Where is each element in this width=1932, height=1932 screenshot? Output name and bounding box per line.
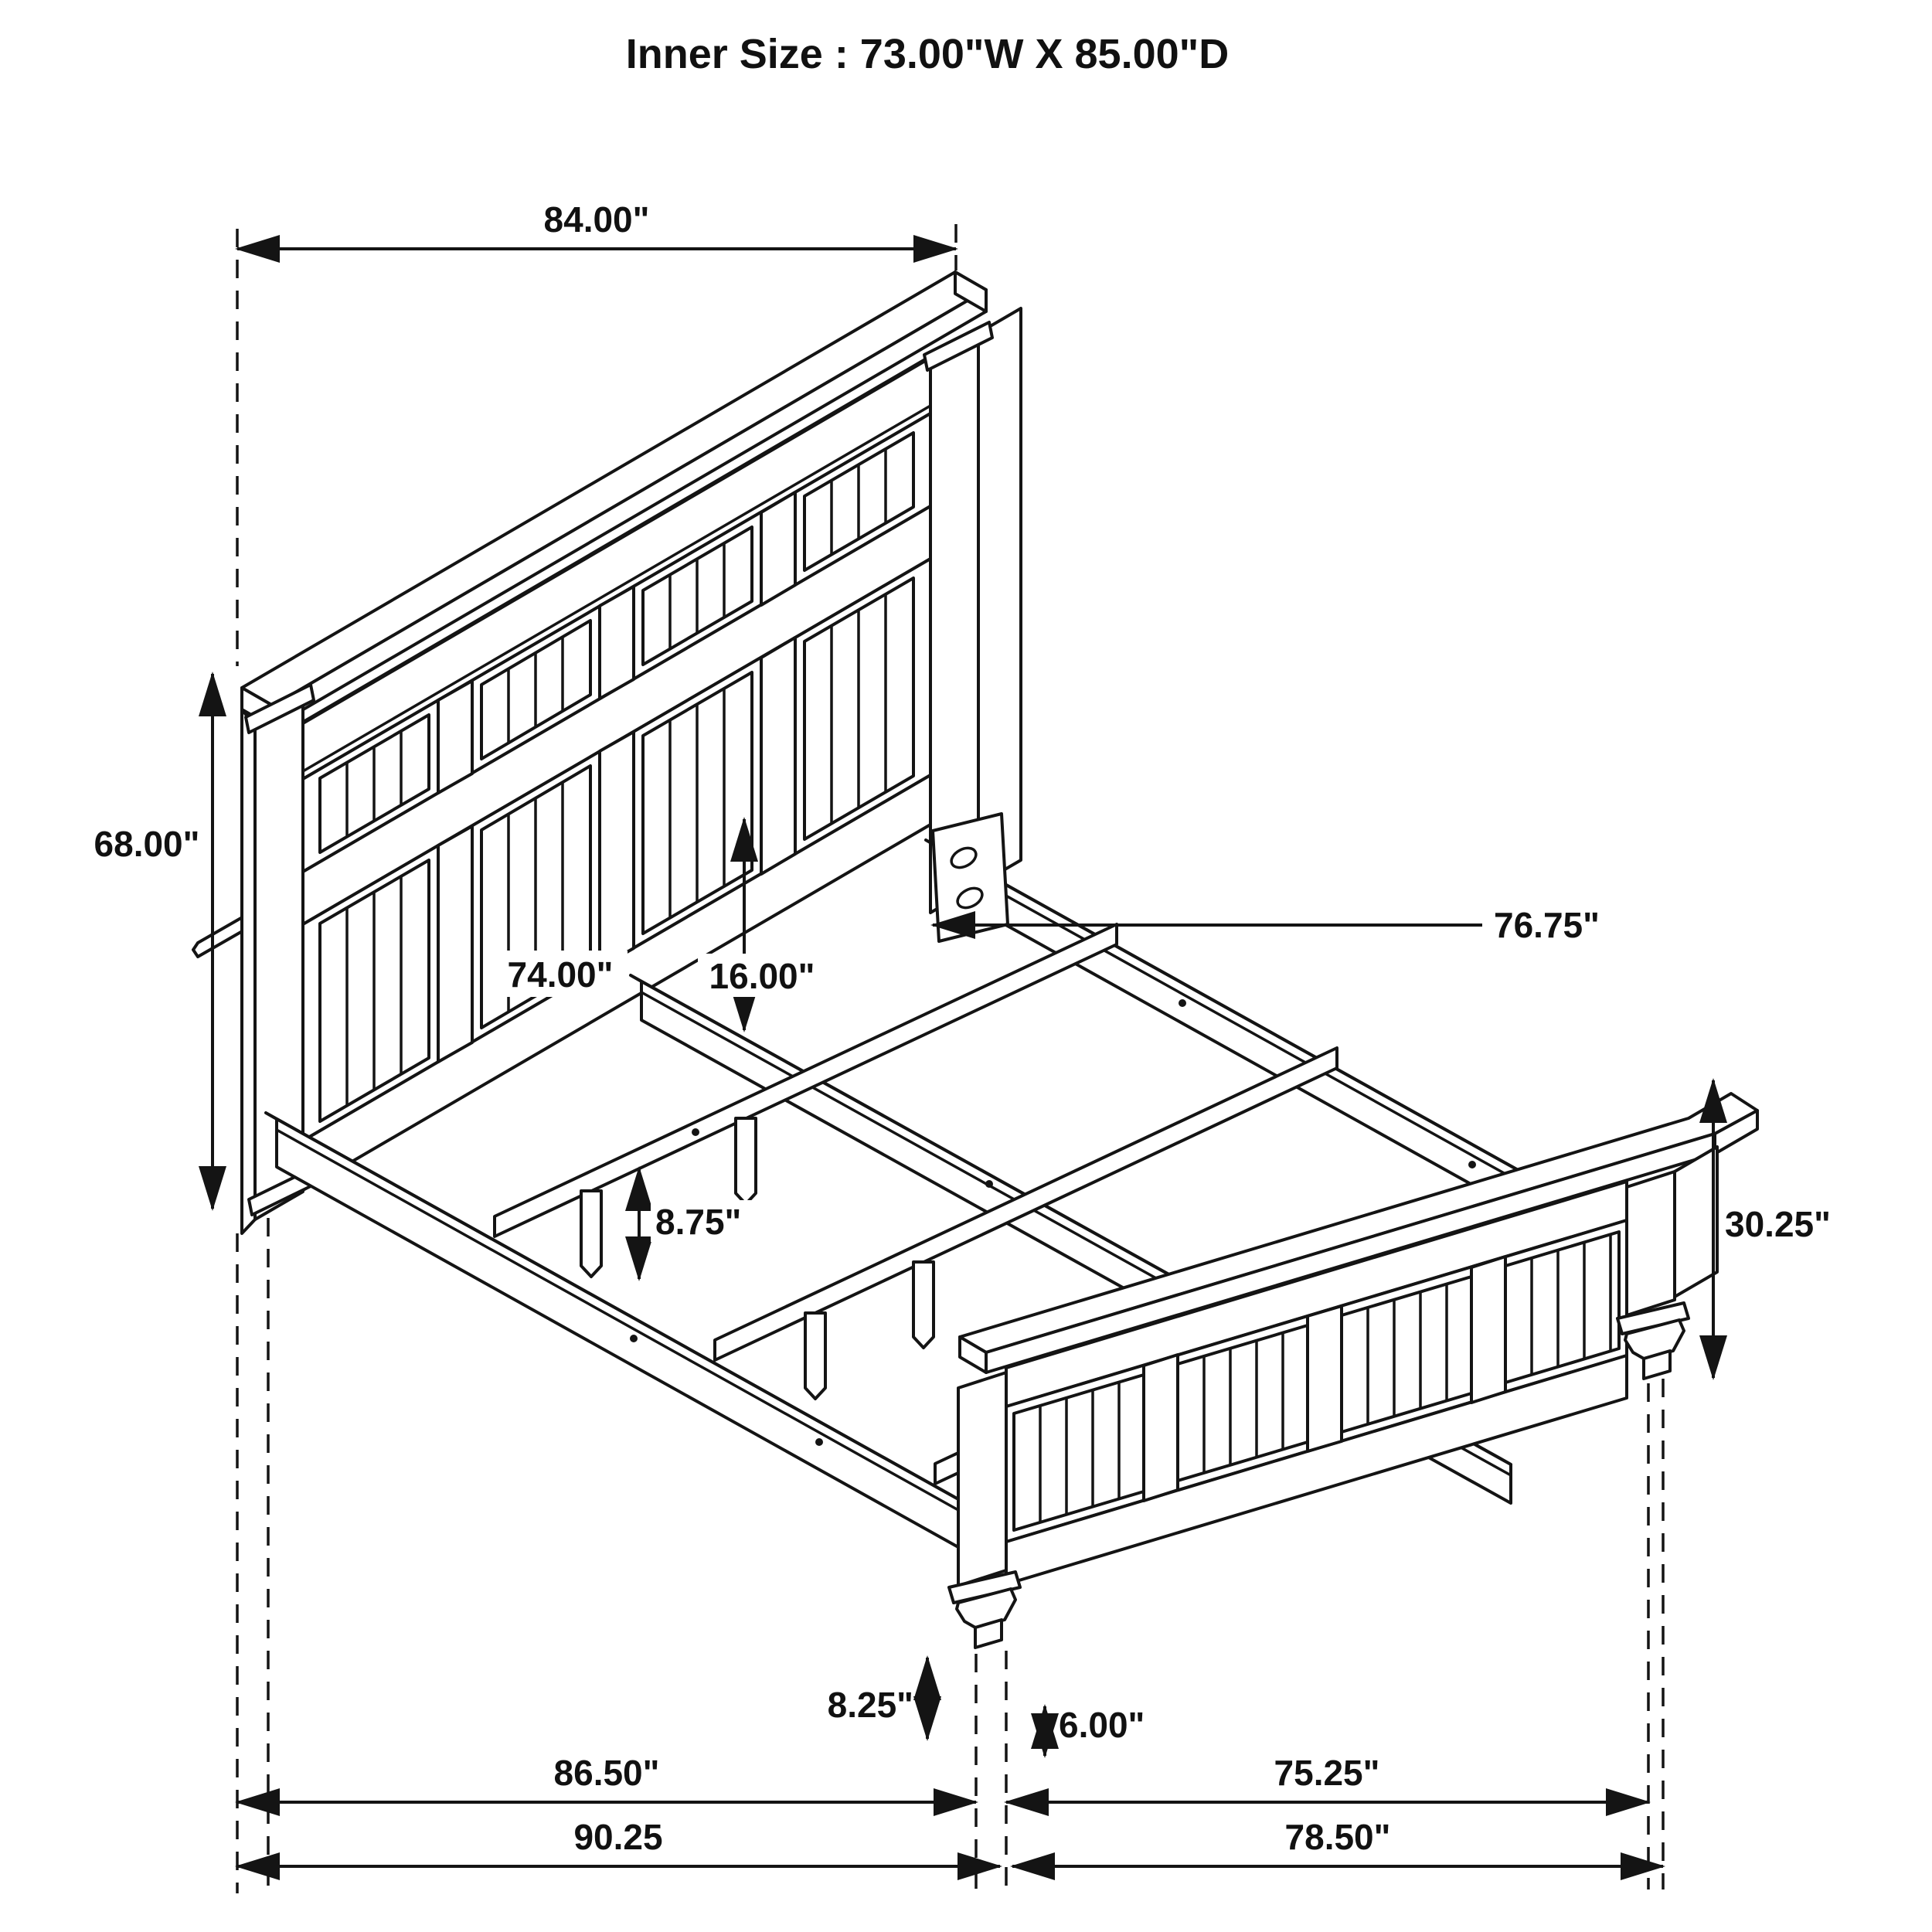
headboard-stile <box>438 826 472 1062</box>
dim-footboard-overall-width: 78.50" <box>1012 1817 1663 1866</box>
headboard-right-post-side <box>978 308 1021 885</box>
headboard-left-post-side <box>242 709 255 1233</box>
footboard-right-post <box>1627 1172 1675 1315</box>
slat-leg <box>805 1313 825 1399</box>
svg-text:30.25": 30.25" <box>1725 1204 1831 1244</box>
slat-leg <box>736 1118 756 1204</box>
dim-foot-height: 8.25" <box>828 1658 927 1739</box>
dim-frame-inner-length: 86.50" <box>237 1753 976 1802</box>
left-rail-ledge <box>277 1130 958 1510</box>
rail-bracket-plate <box>933 814 1008 941</box>
footboard-stile <box>1308 1306 1342 1451</box>
svg-text:75.25": 75.25" <box>1274 1753 1380 1793</box>
headboard-stile <box>438 681 472 793</box>
headboard-stile <box>761 492 795 605</box>
svg-text:86.50": 86.50" <box>554 1753 660 1793</box>
footboard-right-post-side <box>1675 1147 1717 1297</box>
slat-leg <box>581 1191 601 1277</box>
svg-text:76.75": 76.75" <box>1494 905 1600 945</box>
dim-footboard-inner-width: 75.25" <box>1006 1753 1648 1802</box>
headboard-stile <box>600 587 634 699</box>
svg-text:78.50": 78.50" <box>1285 1817 1391 1857</box>
svg-text:16.00": 16.00" <box>709 956 815 996</box>
footboard-stile <box>1144 1355 1178 1501</box>
slat-leg <box>913 1262 934 1348</box>
dim-leg-height: 6.00" <box>1045 1705 1145 1756</box>
left-rail-front <box>277 1119 958 1547</box>
svg-text:8.25": 8.25" <box>828 1685 913 1725</box>
footboard-left-post <box>958 1372 1006 1586</box>
headboard-stile <box>600 732 634 968</box>
svg-text:6.00": 6.00" <box>1059 1705 1145 1745</box>
diagram-svg: Inner Size : 73.00"W X 85.00"D <box>0 0 1932 1932</box>
footboard-stile <box>1471 1257 1505 1403</box>
svg-text:68.00": 68.00" <box>94 824 200 864</box>
svg-text:74.00": 74.00" <box>508 954 614 995</box>
bed-dimension-diagram: Inner Size : 73.00"W X 85.00"D <box>0 0 1932 1932</box>
diagram-title: Inner Size : 73.00"W X 85.00"D <box>626 31 1230 77</box>
svg-text:8.75": 8.75" <box>655 1202 741 1242</box>
headboard-stile <box>761 638 795 874</box>
svg-text:84.00": 84.00" <box>544 199 650 240</box>
headboard-drawing <box>193 272 1021 1233</box>
dim-headboard-height: 68.00" <box>85 674 213 1209</box>
svg-text:90.25: 90.25 <box>573 1817 662 1857</box>
dim-frame-overall-length: 90.25 <box>237 1817 1000 1866</box>
dim-inner-width: 74.00" <box>493 951 628 997</box>
